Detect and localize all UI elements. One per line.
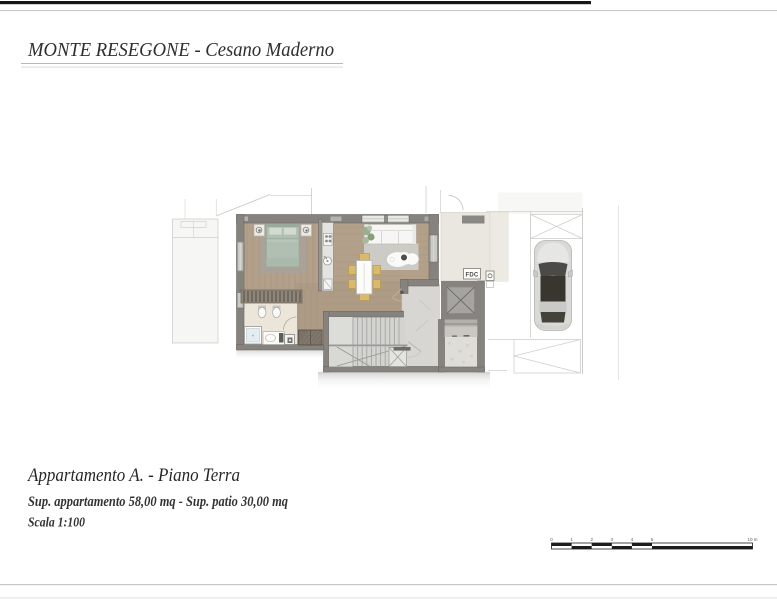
svg-text:FDC: FDC — [466, 273, 479, 279]
svg-text:10 m: 10 m — [747, 537, 757, 542]
svg-text:Scala 1:100: Scala 1:100 — [28, 515, 85, 530]
svg-text:Sup. appartamento 58,00 mq - S: Sup. appartamento 58,00 mq - Sup. patio … — [28, 494, 288, 510]
svg-text:Appartamento A. - Piano Terra: Appartamento A. - Piano Terra — [26, 466, 240, 486]
svg-text:MONTE RESEGONE - Cesano Madern: MONTE RESEGONE - Cesano Maderno — [27, 39, 334, 61]
